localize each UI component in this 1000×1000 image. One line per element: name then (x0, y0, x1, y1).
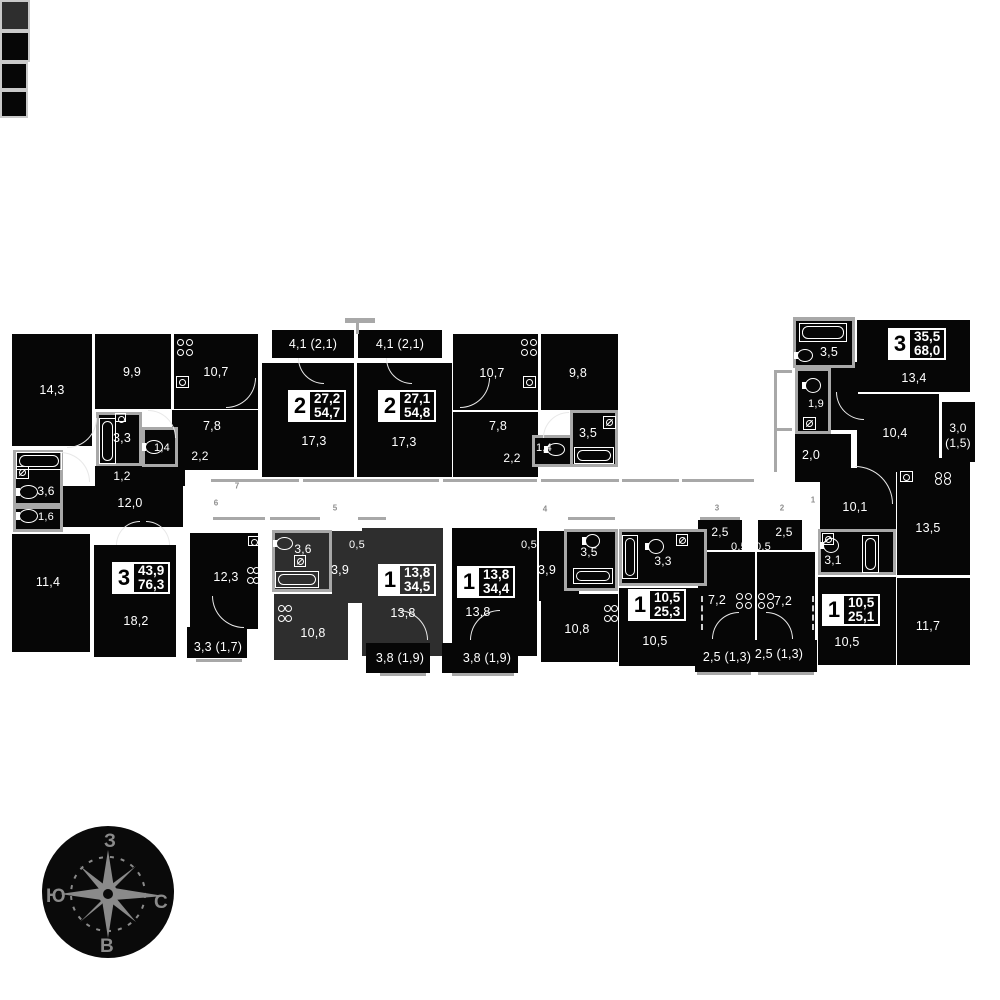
compass-label-west: З (104, 831, 116, 852)
apartment-badge: 113,834,4 (457, 566, 515, 598)
room-area-label: 7,2 (708, 593, 726, 607)
room-area-label: 10,8 (564, 622, 589, 636)
room-area-label: 3,8 (1,9) (463, 651, 511, 665)
room-area-label: 2,5 (1,3) (755, 647, 803, 661)
wall-segment (793, 317, 855, 321)
room-area-label: 1,6 (38, 511, 54, 523)
compass-rose: З Ю С В (38, 820, 178, 960)
room-area-label: 2,5 (775, 525, 792, 539)
room-block (95, 466, 185, 486)
room-area-label: 13,8 (390, 606, 415, 620)
room-area-label: 11,4 (36, 575, 60, 589)
room-area-label: 2,0 (802, 448, 820, 462)
wall-segment (345, 318, 375, 323)
apartment-rooms-count: 1 (824, 596, 844, 624)
toilet-icon (805, 378, 821, 393)
axis-marker: 5 (333, 504, 337, 513)
sink-icon (176, 376, 189, 388)
wall-segment (758, 672, 814, 675)
room-area-label: 9,9 (123, 365, 141, 379)
room-area-label: 4,1 (2,1) (289, 337, 337, 351)
apartment-rooms-count: 2 (290, 392, 310, 420)
living-area: 13,8 (404, 566, 430, 580)
toilet-icon (797, 349, 813, 362)
room-area-label: 13,8 (465, 605, 490, 619)
washer-icon (603, 416, 616, 429)
bathtub-icon (574, 447, 614, 464)
closet-box (0, 90, 28, 118)
wall-segment (682, 479, 754, 482)
wall-segment (303, 479, 439, 482)
closet-box (0, 62, 28, 90)
apartment-badge: 110,525,3 (628, 589, 686, 621)
total-area: 54,8 (404, 406, 430, 420)
apartment-badge: 110,525,1 (822, 594, 880, 626)
stove-icon (520, 338, 537, 356)
room-area-label: 3,5 (820, 345, 838, 359)
room-area-label: 3,1 (824, 553, 841, 567)
wall-segment (700, 517, 740, 520)
wall-segment (211, 479, 299, 482)
apartment-rooms-count: 1 (380, 566, 400, 594)
room-area-label: 10,7 (203, 365, 228, 379)
axis-marker: 3 (715, 504, 719, 513)
room-area-label: 3,0 (949, 421, 966, 435)
room-block (12, 534, 90, 652)
apartment-rooms-count: 3 (114, 564, 134, 592)
room-area-label: 10,7 (479, 366, 504, 380)
washer-icon (16, 466, 29, 479)
opening-dashed-line (812, 596, 814, 630)
total-area: 34,4 (483, 582, 509, 596)
door-arc (60, 452, 90, 482)
room-area-label: 14,3 (39, 383, 64, 397)
axis-marker: 7 (235, 482, 239, 491)
floor-plan-page: 14,39,910,73,31,47,82,21,212,03,61,611,4… (0, 0, 1000, 1000)
closet-box (0, 0, 30, 31)
door-arc (543, 412, 569, 438)
wall-segment (568, 517, 615, 520)
living-area: 27,1 (404, 392, 430, 406)
room-area-label: 1,4 (154, 442, 170, 454)
bathtub-icon (862, 535, 879, 573)
apartment-badge: 113,834,5 (378, 564, 436, 596)
wall-segment (541, 479, 619, 482)
stove-icon (757, 592, 774, 609)
door-arc (67, 418, 97, 448)
apartment-rooms-count: 2 (380, 392, 400, 420)
washer-icon (822, 533, 834, 545)
room-area-label: 7,2 (774, 594, 792, 608)
room-area-label: 1,4 (536, 442, 552, 454)
stove-icon (176, 338, 193, 356)
living-area: 43,9 (138, 564, 164, 578)
wall-segment (196, 659, 242, 662)
apartment-badge: 335,568,0 (888, 328, 946, 360)
stove-icon (277, 604, 292, 622)
room-area-label: 13,4 (901, 371, 926, 385)
room-area-label: 9,8 (569, 366, 587, 380)
total-area: 76,3 (138, 578, 164, 592)
sink-icon (523, 376, 536, 388)
room-area-label: 0,5 (755, 541, 771, 553)
wall-segment (774, 428, 792, 431)
wall-segment (270, 517, 320, 520)
room-area-label: 4,1 (2,1) (376, 337, 424, 351)
living-area: 27,2 (314, 392, 340, 406)
compass-label-north: С (154, 892, 168, 913)
total-area: 25,1 (848, 610, 874, 624)
room-area-label: 3,3 (654, 554, 671, 568)
toilet-icon (19, 485, 38, 499)
room-area-label: 12,0 (117, 496, 142, 510)
apartment-badge: 343,976,3 (112, 562, 170, 594)
compass-label-south: Ю (46, 886, 66, 907)
room-area-label: 0,5 (731, 541, 747, 553)
bathtub-icon (799, 323, 847, 342)
room-area-label: 3,9 (331, 563, 349, 577)
total-area: 34,5 (404, 580, 430, 594)
living-area: 35,5 (914, 330, 940, 344)
apartment-rooms-count: 1 (630, 591, 650, 619)
room-area-label: 1,2 (113, 469, 130, 483)
room-area-label: 10,5 (834, 635, 859, 649)
room-area-label: 0,5 (521, 539, 537, 551)
room-area-label: 3,3 (1,7) (194, 640, 242, 654)
room-area-label: 3,9 (538, 563, 556, 577)
total-area: 25,3 (654, 605, 680, 619)
room-area-label: 10,8 (300, 626, 325, 640)
sink-icon (115, 413, 126, 422)
room-area-label: 0,5 (349, 539, 365, 551)
room-area-label: 17,3 (301, 434, 326, 448)
wall-segment (774, 370, 777, 472)
axis-marker: 1 (811, 496, 815, 505)
room-area-label: 3,8 (1,9) (376, 651, 424, 665)
room-area-label: 17,3 (391, 435, 416, 449)
wall-segment (356, 322, 359, 334)
room-area-label: 1,9 (808, 398, 824, 410)
room-area-label: 3,5 (580, 545, 597, 559)
axis-marker: 2 (780, 504, 784, 513)
living-area: 10,5 (654, 591, 680, 605)
living-area: 13,8 (483, 568, 509, 582)
wall-segment (443, 479, 537, 482)
wall-segment (452, 673, 514, 676)
wall-segment (697, 672, 751, 675)
axis-marker: 4 (543, 505, 547, 514)
closet-box (0, 31, 30, 62)
total-area: 68,0 (914, 344, 940, 358)
apartment-badge: 227,154,8 (378, 390, 436, 422)
room-area-label: 18,2 (123, 614, 148, 628)
room-area-label: 3,6 (294, 542, 311, 556)
bathtub-icon (622, 535, 638, 579)
room-area-label: 3,3 (113, 431, 131, 445)
stove-icon (735, 592, 752, 609)
bathtub-icon (275, 571, 319, 588)
axis-marker: 6 (214, 499, 218, 508)
compass-label-east: В (100, 936, 114, 957)
washer-icon (294, 555, 306, 567)
room-area-label: 2,5 (711, 525, 728, 539)
bathtub-icon (573, 568, 613, 584)
total-area: 54,7 (314, 406, 340, 420)
room-area-label: 12,3 (213, 570, 238, 584)
wall-segment (213, 517, 265, 520)
room-area-label: 3,6 (37, 484, 54, 498)
room-area-label: 10,1 (842, 500, 867, 514)
sink-icon (248, 536, 259, 546)
room-area-label: 7,8 (489, 419, 507, 433)
wall-segment (622, 479, 679, 482)
toilet-icon (19, 509, 38, 523)
wall-segment (774, 370, 792, 373)
stove-icon (246, 566, 260, 584)
apartment-rooms-count: 3 (890, 330, 910, 358)
room-area-label: (1,5) (945, 436, 971, 450)
stove-icon (934, 471, 951, 485)
room-area-label: 2,2 (503, 451, 520, 465)
stove-icon (603, 604, 618, 622)
sink-icon (900, 471, 913, 482)
wall-segment (358, 517, 386, 520)
room-area-label: 7,8 (203, 419, 221, 433)
room-area-label: 2,5 (1,3) (703, 650, 751, 664)
apartment-rooms-count: 1 (459, 568, 479, 596)
apartment-badge: 227,254,7 (288, 390, 346, 422)
toilet-icon (276, 537, 293, 550)
room-area-label: 13,5 (915, 521, 940, 535)
washer-icon (676, 534, 688, 546)
toilet-icon (648, 539, 664, 554)
washer-icon (803, 417, 816, 430)
room-area-label: 10,5 (642, 634, 667, 648)
room-area-label: 2,2 (191, 449, 208, 463)
room-area-label: 10,4 (882, 426, 907, 440)
opening-dashed-line (701, 596, 703, 630)
room-area-label: 3,5 (579, 426, 597, 440)
wall-segment (380, 673, 426, 676)
living-area: 10,5 (848, 596, 874, 610)
room-area-label: 11,7 (916, 619, 940, 633)
